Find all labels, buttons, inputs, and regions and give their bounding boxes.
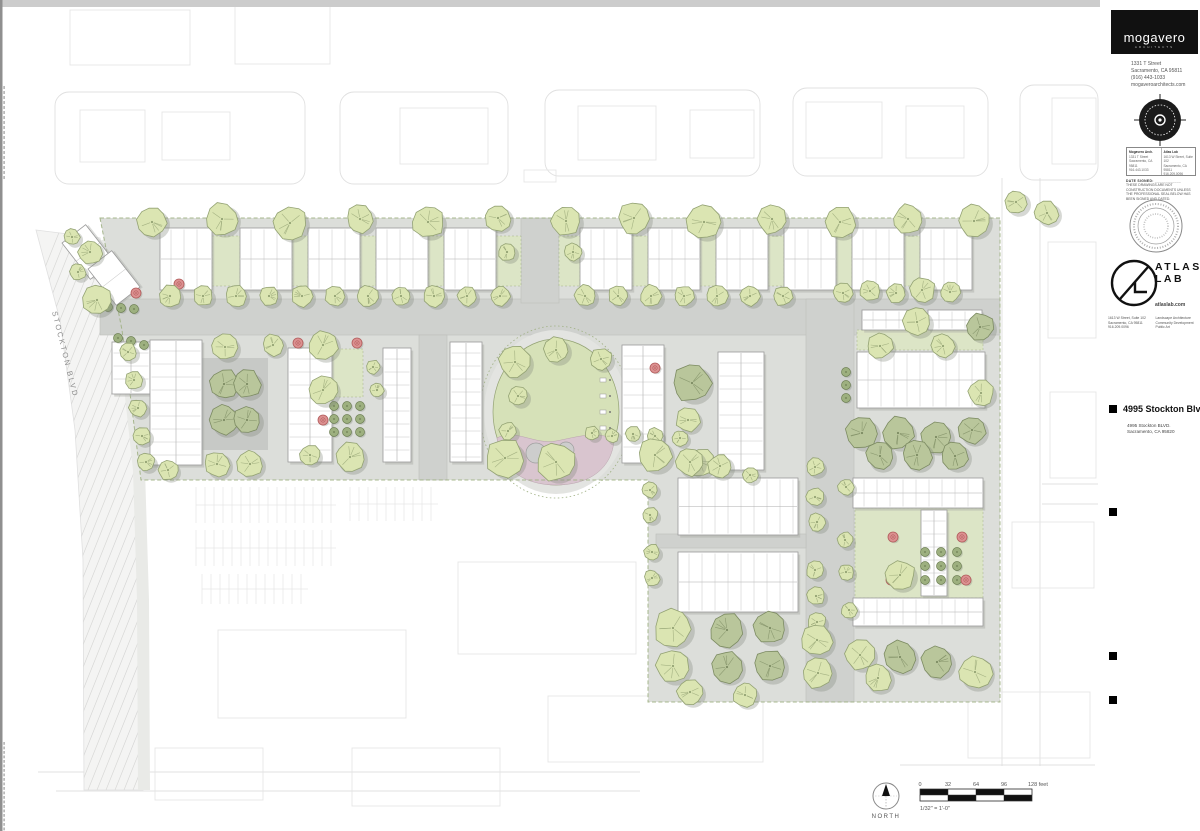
landscape-architect-seal	[1124, 197, 1188, 255]
building-footprint	[857, 352, 985, 408]
mogavero-logo: mogavero ARCHITECTS	[1111, 10, 1198, 54]
tree-canopy	[1034, 201, 1062, 228]
site-furniture	[600, 426, 606, 430]
firm-address: 1331 T Street Sacramento, CA 95811 (916)…	[1131, 61, 1185, 89]
firm-address-line: mogaveroarchitects.com	[1131, 82, 1185, 89]
site-furniture	[600, 410, 606, 414]
firm-address-line: Sacramento, CA 95811	[1131, 68, 1185, 75]
scale-tick-label: 32	[945, 782, 951, 788]
building-footprint	[160, 228, 212, 290]
building-footprint	[852, 228, 904, 290]
scale-tick-label: 128 feet	[1028, 782, 1048, 788]
building-footprint	[718, 352, 764, 470]
atlas-lab-name: ATLAS LAB	[1155, 262, 1200, 285]
mogavero-logo-text: mogavero	[1124, 32, 1186, 44]
atlas-lab-logo	[1108, 256, 1160, 312]
consultant-info-box: Mogavero Arch. 1331 T Street Sacramento,…	[1126, 147, 1196, 176]
atlas-lab-address: 1613 W Street, Suite 102 Sacramento, CA …	[1108, 316, 1151, 330]
consultant-col-head: Atlas Lab	[1164, 150, 1194, 154]
atlas-lab-website: atlaslab.com	[1155, 302, 1185, 308]
site-plan-canvas: STOCKTON BLVDNORTH0326496128 feet1/32" =…	[0, 0, 1100, 831]
building-footprint	[450, 342, 482, 462]
project-title: 4995 Stockton Blvd	[1123, 404, 1200, 414]
building-footprint	[376, 228, 428, 290]
building-footprint	[678, 478, 798, 535]
paved-courtyard	[200, 358, 268, 450]
site-plan-area: STOCKTON BLVDNORTH0326496128 feet1/32" =…	[0, 0, 1100, 831]
building-footprint	[444, 228, 496, 290]
north-arrow: NORTH	[872, 783, 901, 820]
atlas-lab-info: 1613 W Street, Suite 102 Sacramento, CA …	[1108, 316, 1198, 330]
scale-tick-label: 96	[1001, 782, 1007, 788]
scale-bar: 0326496128 feet1/32" = 1'-0"	[918, 782, 1048, 812]
tree-canopy	[1005, 191, 1031, 217]
title-block: mogavero ARCHITECTS 1331 T Street Sacram…	[1100, 0, 1200, 831]
site-furniture	[600, 378, 606, 382]
building-footprint	[580, 228, 632, 290]
firm-address-line: 1331 T Street	[1131, 61, 1185, 68]
mogavero-logo-subtext: ARCHITECTS	[1135, 45, 1174, 49]
consultant-col-landscape: Atlas Lab 1613 W Street, Suite 102 Sacra…	[1162, 148, 1196, 175]
index-marker	[1109, 652, 1117, 660]
building-footprint	[853, 598, 983, 626]
consultant-col-head: Mogavero Arch.	[1129, 150, 1159, 154]
atlas-lab-services: Landscape Architecture Community Develop…	[1156, 316, 1199, 330]
consultant-col-architect: Mogavero Arch. 1331 T Street Sacramento,…	[1127, 148, 1162, 175]
scale-note: 1/32" = 1'-0"	[920, 806, 950, 812]
building-footprint	[648, 228, 700, 290]
project-address: 4995 Stockton BLVD. Sacramento, CA 95820	[1127, 423, 1175, 435]
project-title-row: 4995 Stockton Blvd	[1109, 404, 1200, 414]
site-furniture	[600, 394, 606, 398]
building-footprint	[716, 228, 768, 290]
building-footprint	[308, 228, 360, 290]
building-footprint	[784, 228, 836, 290]
scale-tick-label: 0	[918, 782, 921, 788]
drawing-sheet: STOCKTON BLVDNORTH0326496128 feet1/32" =…	[0, 0, 1200, 831]
building-footprint	[383, 348, 411, 462]
building-footprint	[150, 340, 202, 465]
firm-address-line: (916) 443-1033	[1131, 75, 1185, 82]
building-footprint	[853, 478, 983, 508]
architect-stamp-seal	[1128, 94, 1192, 146]
scale-tick-label: 64	[973, 782, 979, 788]
north-label: NORTH	[872, 814, 901, 820]
project-marker-square	[1109, 405, 1117, 413]
building-footprint	[678, 552, 798, 612]
index-marker	[1109, 508, 1117, 516]
index-marker	[1109, 696, 1117, 704]
